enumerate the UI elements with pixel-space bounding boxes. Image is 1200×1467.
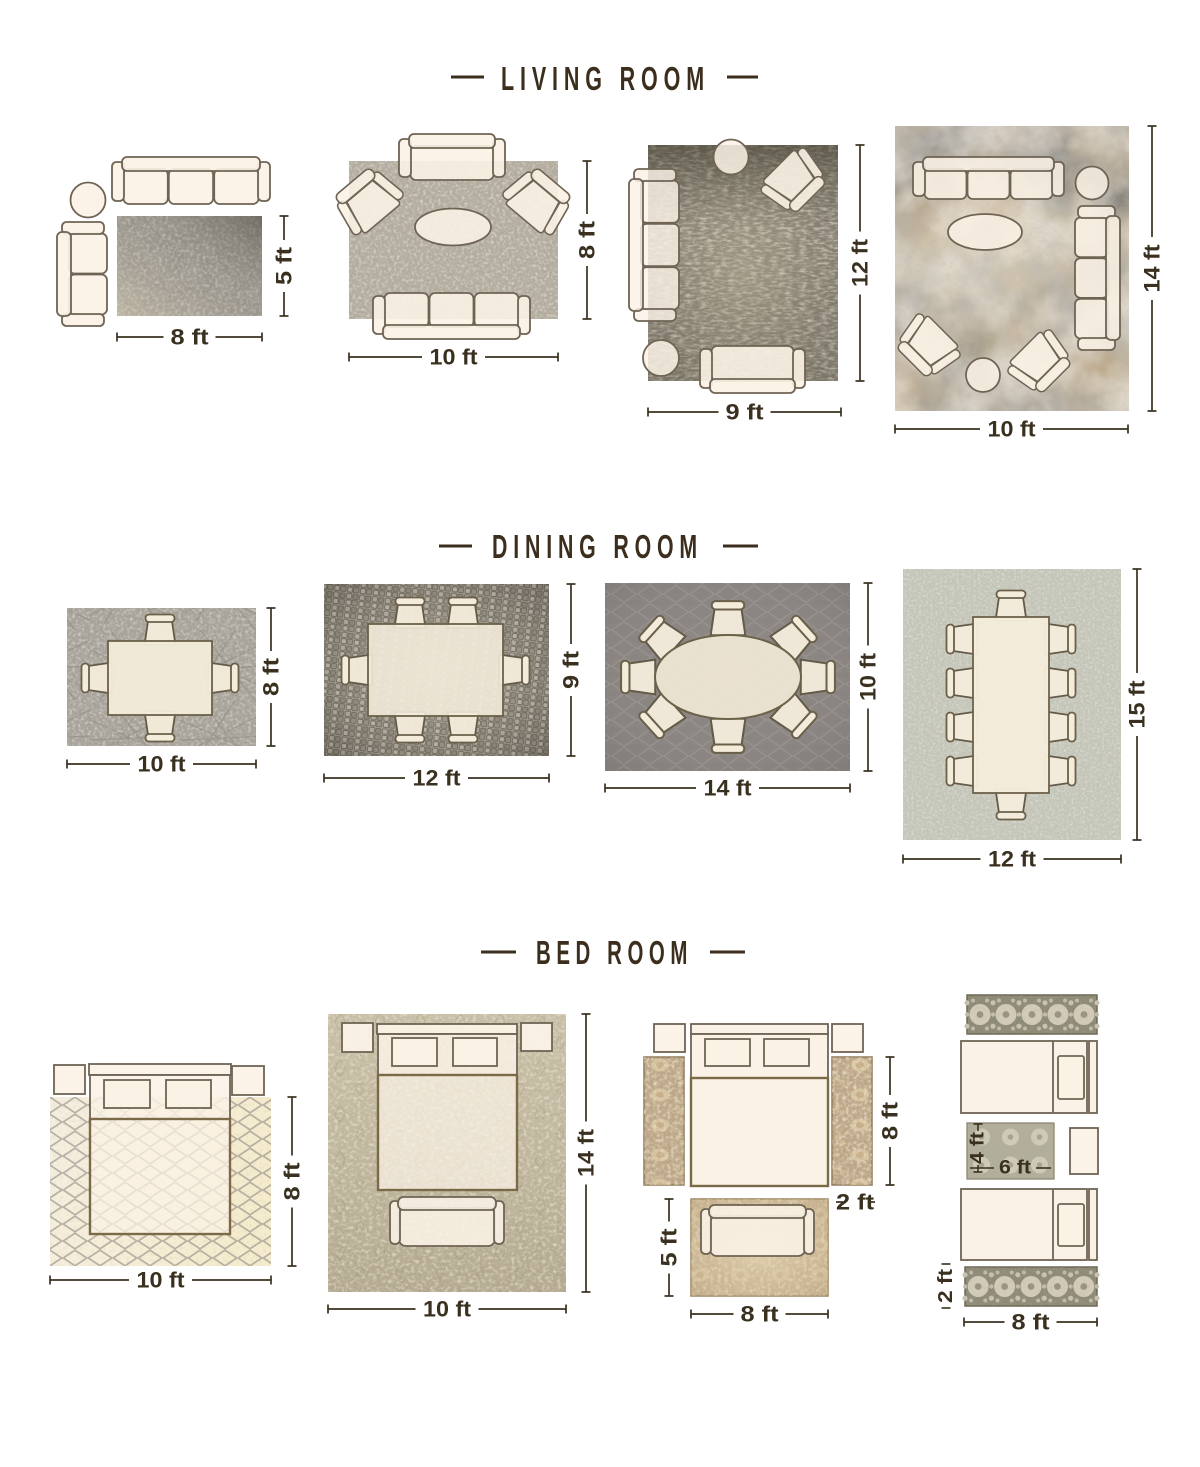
svg-text:10 ft: 10 ft [430,345,479,370]
svg-text:5 ft: 5 ft [657,1228,682,1267]
svg-text:8 ft: 8 ft [1012,1310,1051,1335]
svg-text:4 ft: 4 ft [968,1131,989,1164]
svg-text:2 ft: 2 ft [935,1269,957,1303]
svg-text:8 ft: 8 ft [259,657,284,696]
svg-text:9 ft: 9 ft [726,400,765,425]
svg-text:8 ft: 8 ft [741,1302,780,1327]
svg-text:8 ft: 8 ft [575,220,600,259]
svg-text:8 ft: 8 ft [878,1101,903,1140]
svg-text:14 ft: 14 ft [1140,244,1165,293]
svg-text:10 ft: 10 ft [138,752,187,777]
svg-text:10 ft: 10 ft [137,1268,186,1293]
svg-text:9 ft: 9 ft [559,650,584,689]
svg-text:15 ft: 15 ft [1125,680,1150,729]
svg-text:LIVING ROOM: LIVING ROOM [501,60,710,97]
svg-text:10 ft: 10 ft [856,652,881,701]
svg-text:8 ft: 8 ft [171,325,210,350]
svg-text:12 ft: 12 ft [988,847,1037,872]
svg-text:6 ft: 6 ft [999,1158,1032,1179]
svg-text:8 ft: 8 ft [280,1162,305,1201]
svg-text:5 ft: 5 ft [272,246,297,285]
svg-text:10 ft: 10 ft [988,417,1037,442]
svg-text:12 ft: 12 ft [413,766,462,791]
svg-text:BED ROOM: BED ROOM [536,934,693,971]
svg-text:12 ft: 12 ft [848,238,873,287]
svg-text:14 ft: 14 ft [704,776,753,801]
svg-text:DINING ROOM: DINING ROOM [492,528,703,565]
svg-text:10 ft: 10 ft [423,1297,472,1322]
svg-text:14 ft: 14 ft [574,1128,599,1177]
